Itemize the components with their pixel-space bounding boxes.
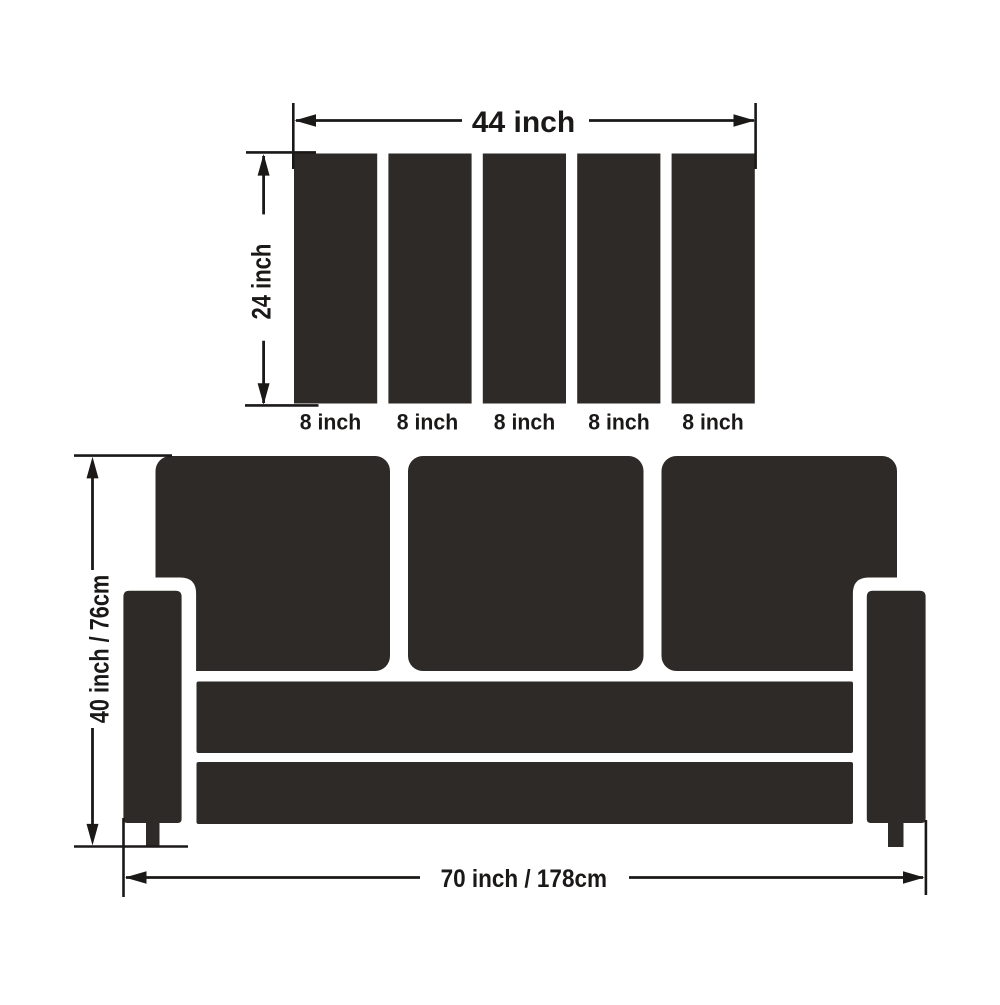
svg-text:24 inch: 24 inch <box>248 244 277 320</box>
svg-text:44 inch: 44 inch <box>472 106 575 139</box>
svg-text:8 inch: 8 inch <box>397 409 458 435</box>
svg-text:8 inch: 8 inch <box>682 409 743 435</box>
svg-text:8 inch: 8 inch <box>588 409 649 435</box>
svg-text:70 inch / 178cm: 70 inch / 178cm <box>441 865 607 894</box>
svg-text:8 inch: 8 inch <box>300 409 361 435</box>
svg-text:40 inch / 76cm: 40 inch / 76cm <box>86 575 116 723</box>
svg-text:8 inch: 8 inch <box>494 409 555 435</box>
